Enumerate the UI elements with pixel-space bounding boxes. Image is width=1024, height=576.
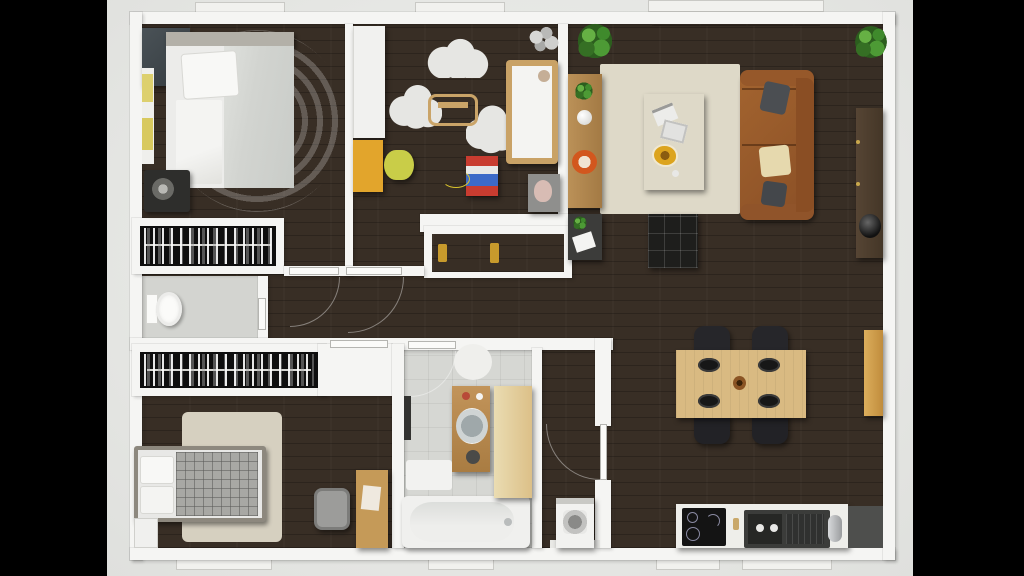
toilet-bowl bbox=[156, 292, 182, 326]
console-sphere bbox=[577, 110, 592, 125]
bath-radiator bbox=[404, 396, 411, 440]
plate-4 bbox=[758, 394, 780, 408]
counter-item bbox=[733, 518, 739, 530]
wine-bottle bbox=[733, 376, 746, 390]
plant-top-right bbox=[852, 24, 890, 60]
wall-bottom bbox=[130, 548, 895, 560]
wall-right bbox=[883, 12, 895, 560]
bed2-plaid-blanket bbox=[176, 452, 258, 516]
bed2-nightstand bbox=[134, 518, 158, 548]
burner-1 bbox=[687, 512, 698, 523]
toy-string bbox=[442, 170, 470, 188]
bed2-desk-papers bbox=[361, 485, 381, 511]
yellow-pillow-2 bbox=[142, 118, 153, 150]
pendant-lamp bbox=[526, 26, 560, 54]
bath-soap bbox=[462, 392, 470, 400]
bath-cabinet bbox=[494, 386, 532, 498]
sofa-backrest bbox=[796, 78, 814, 212]
wall-nook-upper bbox=[595, 338, 611, 426]
door-wc bbox=[258, 298, 266, 330]
crib-teddy bbox=[538, 70, 550, 82]
dumbbell-gold bbox=[438, 244, 482, 262]
door-nook bbox=[600, 424, 607, 480]
rocking-toy bbox=[428, 94, 478, 126]
bedroom2-clothes-rack bbox=[140, 352, 318, 388]
console-knob-2 bbox=[856, 182, 860, 186]
bed2-chair bbox=[314, 488, 350, 530]
bath-stool bbox=[466, 450, 480, 464]
bedroom2-entry-filler bbox=[318, 344, 392, 396]
cloud-rug-1 bbox=[424, 38, 490, 78]
plate-1 bbox=[698, 358, 720, 372]
wall-nook-lower bbox=[595, 480, 611, 548]
ottoman bbox=[648, 214, 698, 268]
sink-dot-2 bbox=[770, 524, 778, 532]
bathtub-basin bbox=[410, 502, 514, 542]
master-clothes-rack bbox=[140, 226, 276, 266]
window-living-bay bbox=[648, 0, 824, 12]
sofa-pillow-dark-2 bbox=[760, 180, 787, 207]
kids-desk bbox=[353, 140, 383, 192]
plate-2 bbox=[758, 358, 780, 372]
plate-3 bbox=[698, 394, 720, 408]
yellow-pillow-1 bbox=[142, 74, 153, 102]
dumbbell-blue bbox=[490, 243, 548, 263]
burner-2 bbox=[686, 527, 700, 541]
sink-dot-1 bbox=[756, 524, 764, 532]
door-kids bbox=[346, 267, 402, 275]
console-orange-plate bbox=[572, 150, 597, 174]
speaker bbox=[859, 214, 881, 238]
door-bathroom bbox=[408, 341, 456, 349]
plant-top-left bbox=[574, 22, 616, 60]
console-knob-1 bbox=[856, 140, 860, 144]
bath-sink bbox=[456, 408, 488, 444]
toy-cart bbox=[466, 156, 498, 196]
floor-fan-grill bbox=[152, 178, 174, 200]
floorplan-screenshot: { "scene": { "type": "3d-floor-plan-rend… bbox=[0, 0, 1024, 576]
washing-machine-door bbox=[563, 510, 587, 534]
kids-wardrobe bbox=[353, 26, 385, 138]
wall-top bbox=[130, 12, 895, 24]
bed2-pillow-1 bbox=[140, 456, 174, 484]
bathtub-faucet bbox=[504, 518, 512, 526]
kitchen-counter-dark bbox=[848, 506, 883, 548]
door-bedroom2 bbox=[330, 340, 388, 348]
bath-round-rug bbox=[454, 344, 492, 380]
wall-master-kids bbox=[345, 24, 353, 276]
low-cabinet-plant bbox=[572, 216, 588, 230]
table-dot bbox=[672, 170, 679, 177]
teddy-bear bbox=[534, 180, 552, 202]
bed2-pillow-2 bbox=[140, 486, 174, 514]
yellow-bowl bbox=[652, 144, 678, 167]
kitchen-faucet bbox=[828, 515, 842, 542]
console-plant bbox=[573, 82, 595, 100]
rocking-toy-seat bbox=[438, 102, 468, 108]
dining-tall-cabinet bbox=[864, 330, 883, 416]
kids-chair bbox=[384, 150, 414, 180]
sink-drainboard bbox=[786, 514, 824, 544]
master-bed-pillow bbox=[180, 50, 239, 100]
wall-bathroom-right bbox=[532, 348, 542, 548]
bath-mat bbox=[406, 460, 452, 490]
door-master bbox=[289, 267, 339, 275]
sofa-pillow-cream bbox=[759, 145, 792, 178]
burner-3 bbox=[706, 514, 720, 528]
bath-cup bbox=[476, 393, 483, 400]
